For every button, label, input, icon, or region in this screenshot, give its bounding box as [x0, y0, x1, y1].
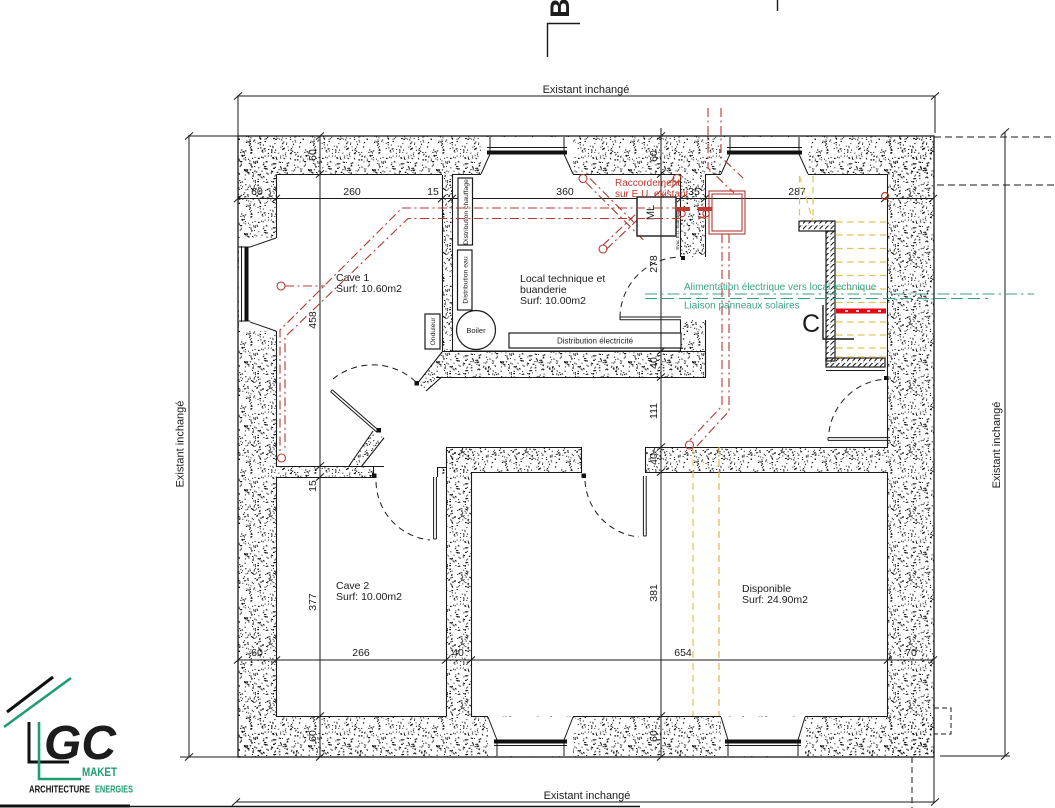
svg-text:60: 60: [648, 150, 660, 162]
svg-text:Existant inchangé: Existant inchangé: [544, 790, 631, 802]
svg-text:40: 40: [648, 357, 660, 369]
svg-text:MAKET: MAKET: [82, 765, 118, 779]
svg-text:60: 60: [307, 730, 319, 742]
svg-text:Surf: 24.90m2: Surf: 24.90m2: [742, 594, 808, 606]
svg-text:ENERGIES: ENERGIES: [95, 785, 133, 796]
svg-text:381: 381: [648, 584, 660, 602]
svg-text:458: 458: [307, 311, 319, 329]
svg-text:40: 40: [452, 647, 464, 659]
svg-text:60: 60: [307, 149, 319, 161]
svg-text:ARCHITECTURE: ARCHITECTURE: [29, 785, 90, 796]
svg-text:377: 377: [307, 593, 319, 611]
svg-text:260: 260: [343, 186, 361, 198]
svg-text:111: 111: [648, 403, 660, 419]
svg-text:Surf: 10.00m2: Surf: 10.00m2: [520, 295, 586, 307]
svg-text:266: 266: [352, 647, 370, 659]
svg-text:Distribution électricité: Distribution électricité: [557, 337, 634, 346]
svg-text:35: 35: [688, 186, 700, 198]
svg-text:GC: GC: [44, 717, 117, 770]
svg-text:60: 60: [251, 186, 263, 198]
svg-text:Existant inchangé: Existant inchangé: [991, 402, 1003, 489]
svg-text:60: 60: [648, 730, 660, 742]
svg-text:70: 70: [905, 647, 917, 659]
svg-text:15: 15: [427, 186, 439, 198]
svg-text:Surf: 10.00m2: Surf: 10.00m2: [336, 591, 402, 603]
svg-text:sur E.U. existant: sur E.U. existant: [615, 189, 689, 200]
svg-text:Onduleur: Onduleur: [430, 317, 437, 346]
svg-text:654: 654: [674, 647, 692, 659]
svg-text:Boiler: Boiler: [466, 326, 486, 335]
svg-text:Surf: 10.60m2: Surf: 10.60m2: [336, 283, 402, 295]
svg-text:360: 360: [556, 186, 574, 198]
svg-text:Raccordement: Raccordement: [615, 178, 680, 189]
svg-text:Distribution eau: Distribution eau: [463, 256, 470, 303]
svg-text:C: C: [802, 310, 820, 338]
svg-text:Existant inchangé: Existant inchangé: [175, 401, 187, 488]
svg-text:278: 278: [648, 255, 660, 273]
svg-text:ML: ML: [645, 205, 657, 220]
svg-text:Existant inchangé: Existant inchangé: [543, 84, 630, 96]
svg-text:60: 60: [251, 647, 263, 659]
svg-text:B: B: [545, 0, 575, 18]
svg-text:Alimentation électrique vers l: Alimentation électrique vers local techn…: [684, 282, 877, 293]
svg-text:Liaison panneaux solaires: Liaison panneaux solaires: [684, 301, 800, 312]
svg-text:Distribution chauffage: Distribution chauffage: [463, 179, 470, 245]
svg-text:40: 40: [648, 453, 660, 465]
svg-text:15: 15: [307, 480, 319, 492]
